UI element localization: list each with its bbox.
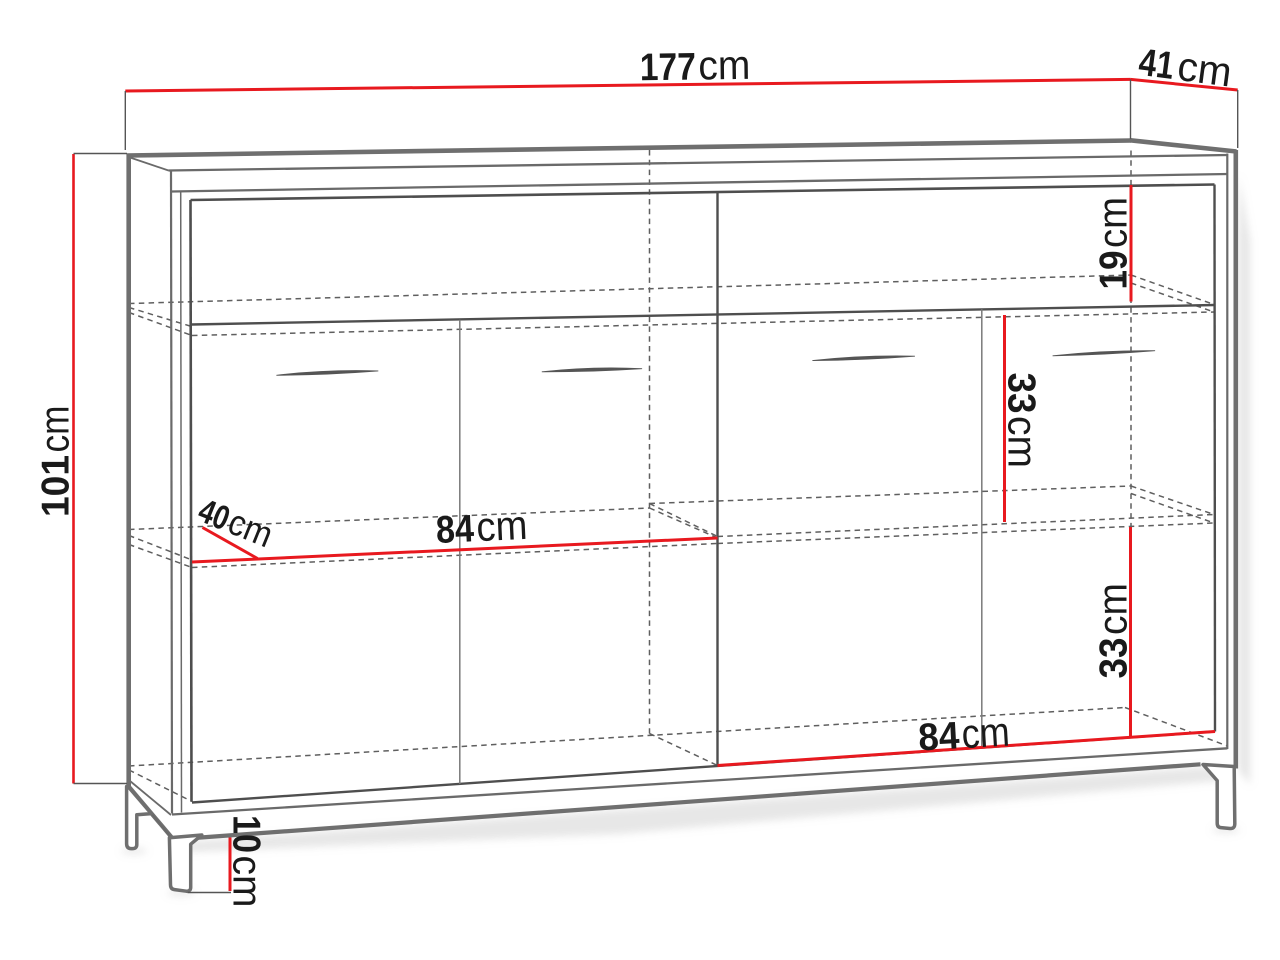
svg-text:177cm: 177cm (640, 42, 751, 89)
svg-text:101cm: 101cm (31, 406, 77, 518)
svg-text:10cm: 10cm (225, 815, 271, 908)
svg-text:33cm: 33cm (1090, 583, 1136, 679)
svg-text:19cm: 19cm (1090, 197, 1136, 290)
svg-text:84cm: 84cm (917, 708, 1011, 759)
svg-text:33cm: 33cm (1000, 373, 1046, 469)
svg-text:84cm: 84cm (435, 502, 528, 552)
